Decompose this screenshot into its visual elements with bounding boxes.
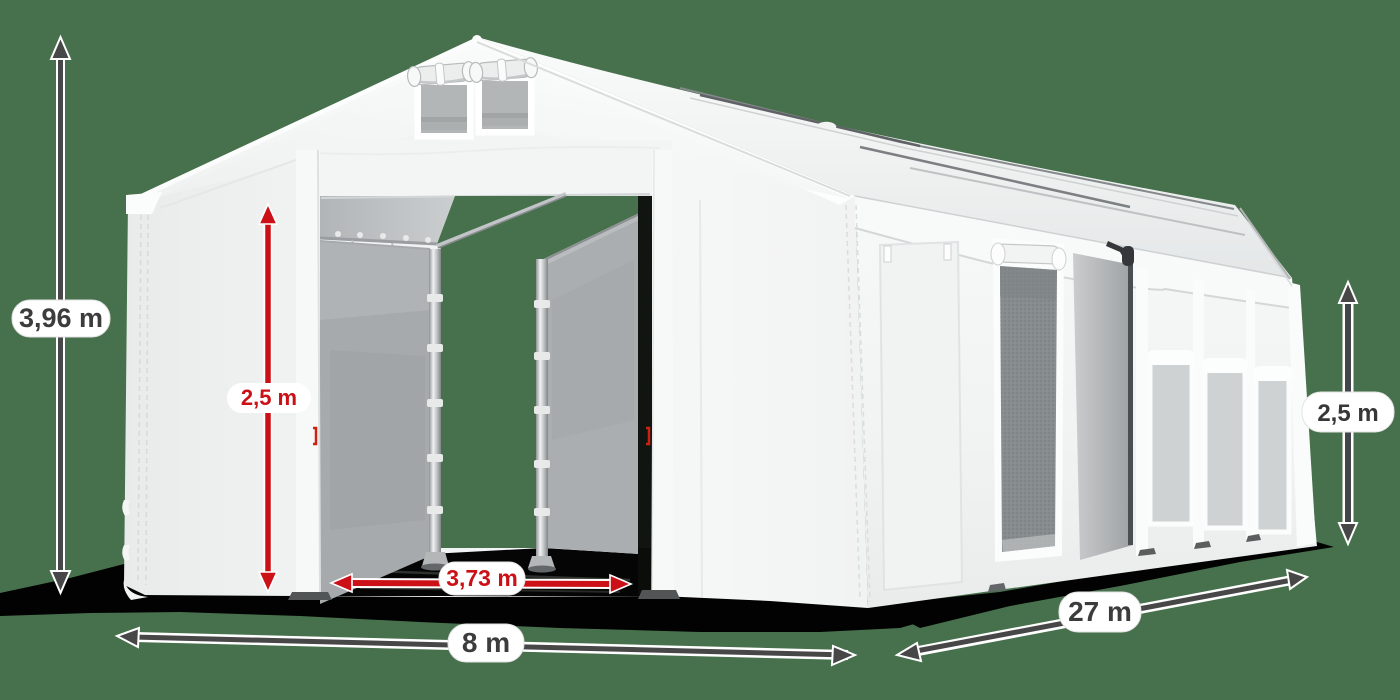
svg-text:2,5 m: 2,5 m xyxy=(241,385,297,410)
svg-text:2,5 m: 2,5 m xyxy=(1317,400,1378,427)
svg-text:27 m: 27 m xyxy=(1068,596,1132,627)
svg-text:3,96 m: 3,96 m xyxy=(19,303,103,333)
svg-text:3,73 m: 3,73 m xyxy=(446,565,518,591)
svg-text:8 m: 8 m xyxy=(462,627,510,658)
